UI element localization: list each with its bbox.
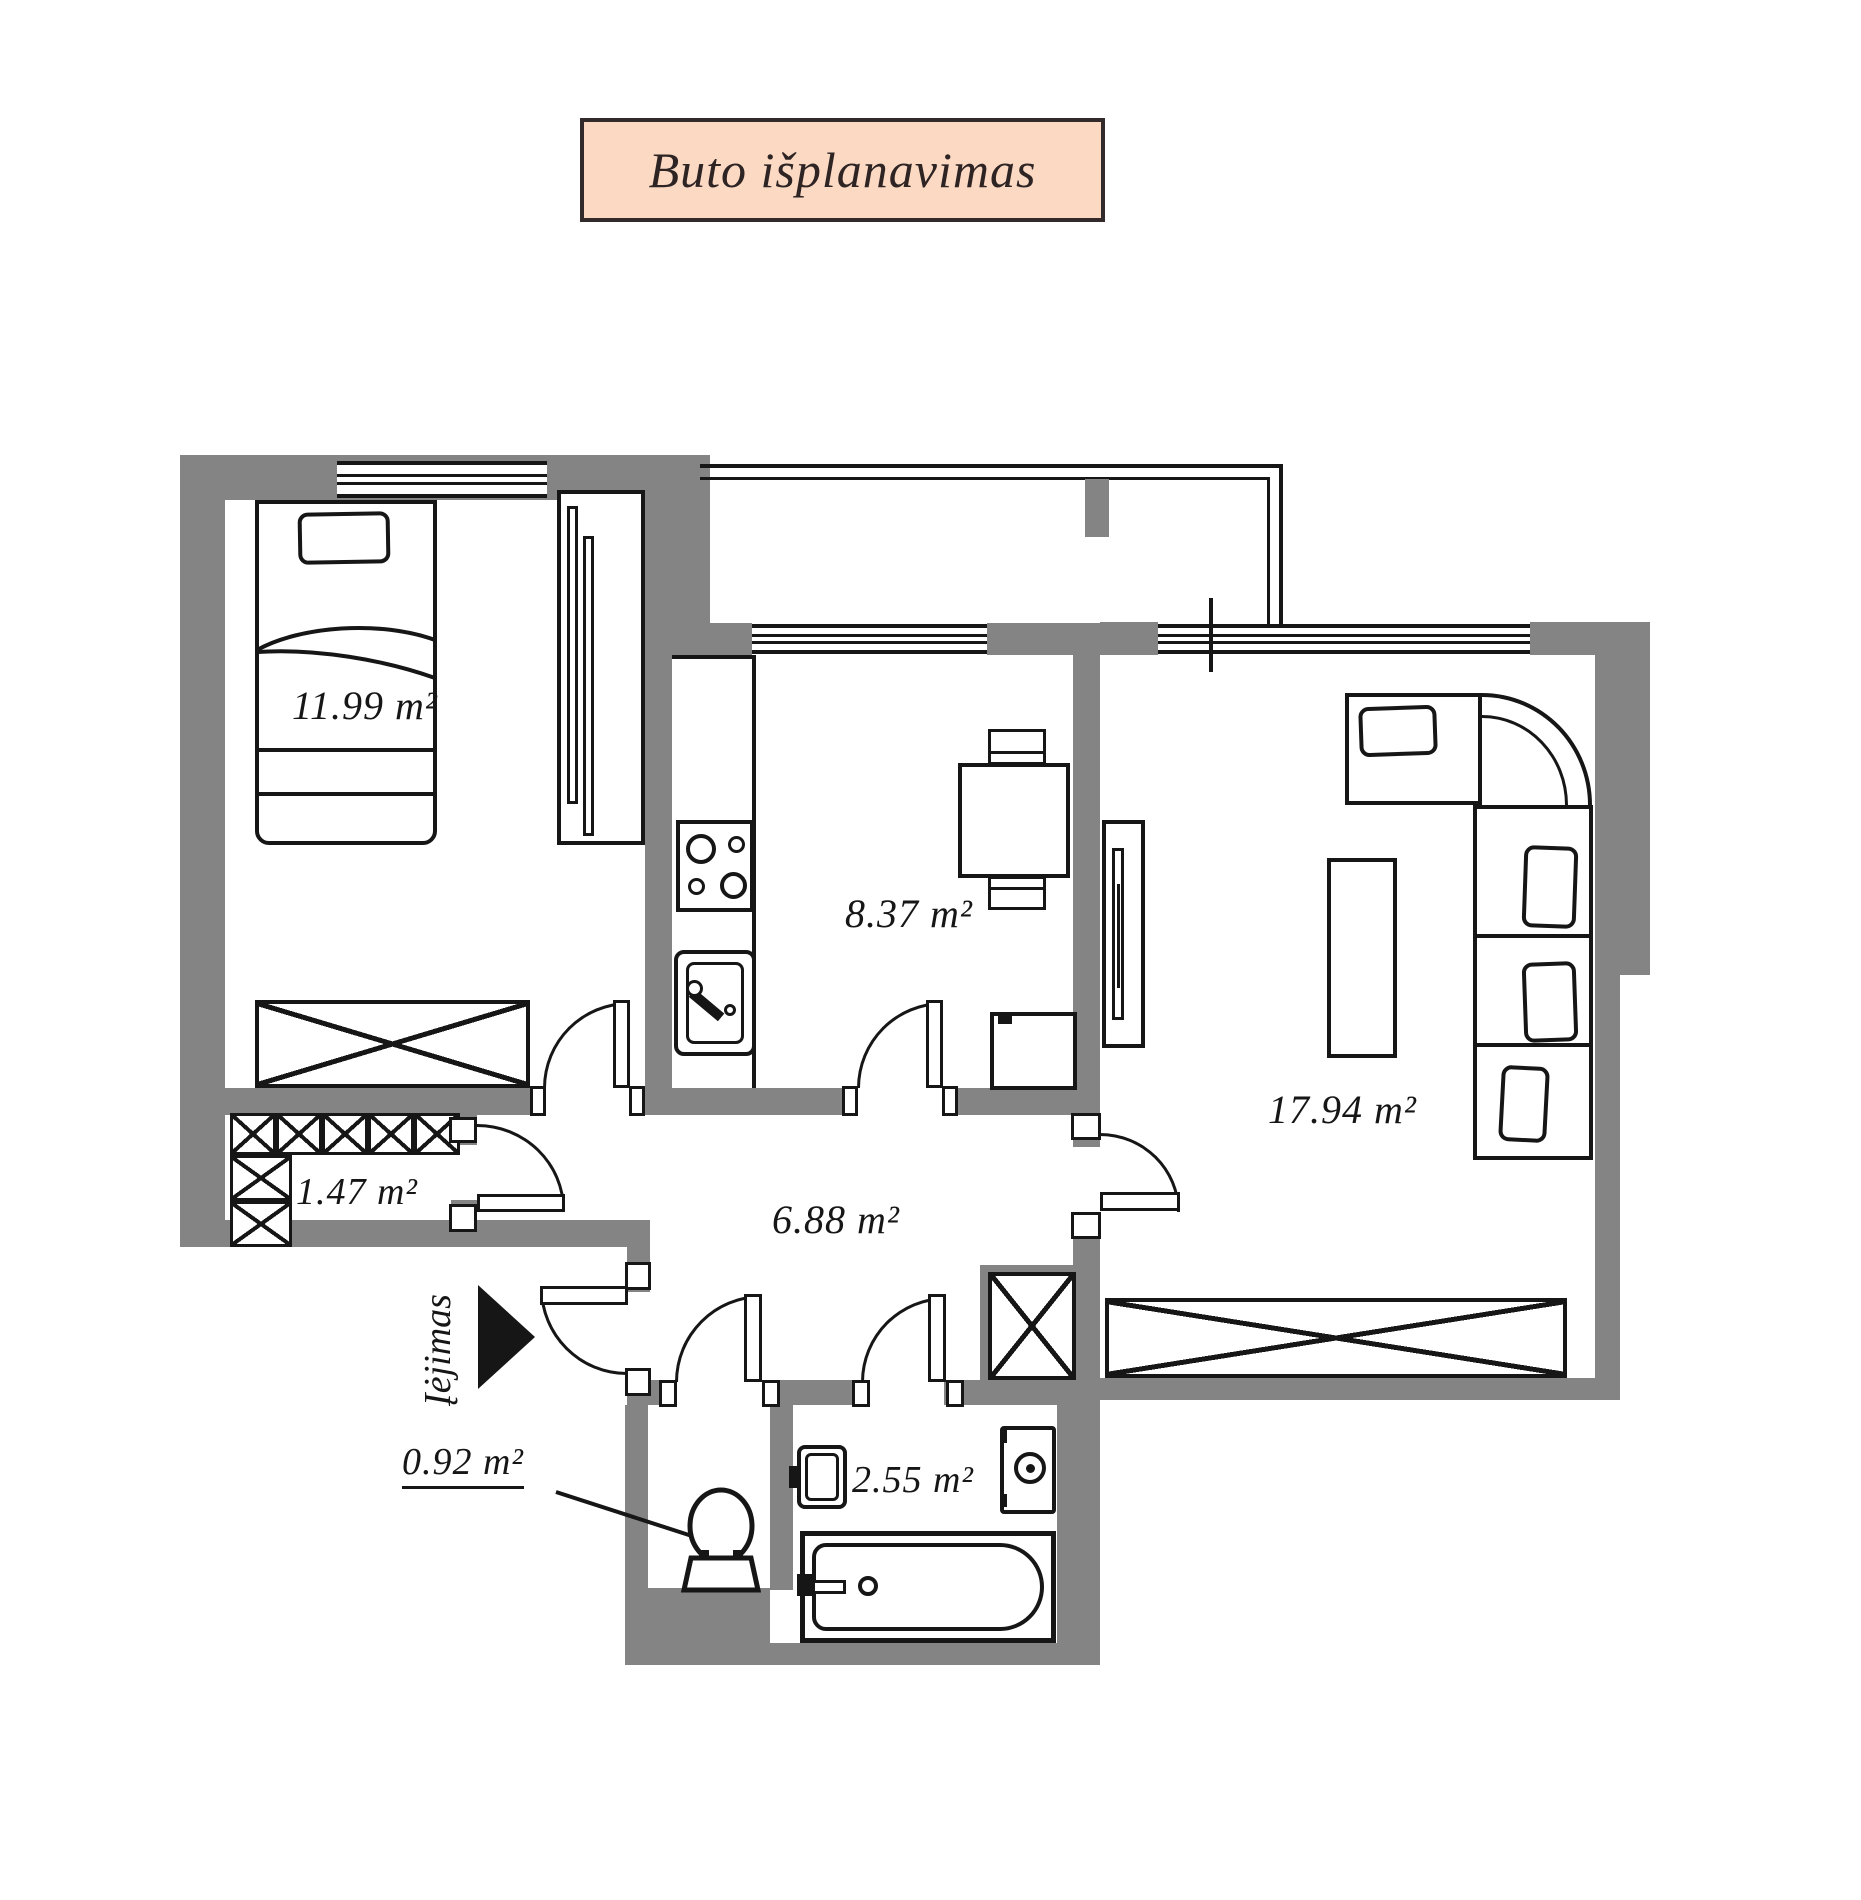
title-box: Buto išplanavimas [580, 118, 1105, 222]
stove-burner [688, 878, 705, 895]
wall [1095, 1378, 1600, 1400]
wall [645, 455, 710, 655]
living-window [1158, 624, 1530, 654]
sofa-pillow [1498, 1065, 1550, 1143]
wall [987, 623, 1100, 655]
tub-faucet [797, 1574, 813, 1596]
closet-shelf-cell [322, 1113, 368, 1155]
kitchen-table [958, 763, 1070, 878]
door-jamb [1071, 1212, 1101, 1239]
wardrobe-door [583, 536, 594, 836]
wardrobe-door [567, 506, 578, 804]
floor-plan: Buto išplanavimas [0, 0, 1861, 1900]
door-jamb [449, 1204, 477, 1232]
bathroom-area-label: 2.55 m² [852, 1458, 974, 1502]
wall [1100, 622, 1158, 655]
door-jamb [946, 1380, 964, 1407]
tv-line [1117, 884, 1120, 988]
closet-shelf-cell [230, 1113, 276, 1155]
chair [988, 876, 1046, 910]
closet-shelf-cell [230, 1201, 292, 1247]
bed-line [257, 792, 435, 796]
basin-tap [789, 1466, 801, 1488]
sofa-pillow [1358, 705, 1438, 758]
bedroom-window [337, 461, 547, 498]
entrance-label: Įėjimas [416, 1265, 460, 1435]
wall [1595, 622, 1650, 975]
tub-drain [858, 1576, 878, 1596]
stove-burner [720, 872, 747, 899]
kitchen-window [752, 624, 987, 654]
window-mullion [1158, 641, 1530, 644]
door-jamb [625, 1368, 651, 1396]
window-mullion [752, 634, 987, 637]
balcony-outline [700, 464, 1283, 468]
stove-burner [686, 834, 716, 864]
door-jamb [449, 1117, 477, 1143]
wall [705, 623, 752, 655]
wall [1057, 1400, 1100, 1665]
bed-line [257, 748, 435, 752]
window-mullion [1158, 634, 1530, 637]
basin-inner [805, 1453, 839, 1501]
bed-pillow [298, 511, 391, 565]
page-title: Buto išplanavimas [649, 141, 1037, 199]
chair-back-line [991, 887, 1043, 890]
bathtub-inner [812, 1543, 1044, 1631]
closet-shelf-cell [230, 1155, 292, 1201]
wall [770, 1405, 793, 1590]
tub-spout [812, 1580, 846, 1594]
stove [676, 820, 754, 912]
bedroom-storage [255, 1000, 530, 1088]
door-jamb [842, 1086, 858, 1116]
living-area-label: 17.94 m² [1268, 1086, 1417, 1133]
wall [942, 1088, 1100, 1115]
sofa-pillow [1522, 845, 1579, 929]
door-jamb [629, 1086, 645, 1116]
vent-shaft [988, 1272, 1076, 1380]
coffee-table [1327, 858, 1397, 1058]
living-wardrobe [1105, 1298, 1567, 1378]
washer-hinge [1000, 1430, 1007, 1443]
door-jamb [625, 1262, 651, 1290]
washer-drum-dot [1026, 1464, 1035, 1473]
bed-blanket-lines [255, 612, 437, 692]
bathroom-door-leaf [928, 1294, 946, 1382]
bedroom-area-label: 11.99 m² [292, 682, 438, 729]
kitchen-area-label: 8.37 m² [845, 890, 973, 937]
window-tick-mark [1209, 598, 1213, 672]
balcony-outline [700, 477, 1270, 480]
sofa-seat-divider [1473, 934, 1593, 938]
closet-shelf-cell [276, 1113, 322, 1155]
closet-area-label: 1.47 m² [296, 1170, 418, 1214]
chair-back-line [991, 751, 1043, 754]
balcony-outline [1279, 464, 1283, 624]
sink-basin [686, 962, 744, 1044]
wall [1595, 975, 1620, 1400]
hallway-area-label: 6.88 m² [772, 1196, 900, 1243]
bedroom-door-leaf [613, 1000, 630, 1088]
closet-shelf-cell [368, 1113, 414, 1155]
living-door-leaf [1100, 1192, 1180, 1211]
wall [180, 1088, 546, 1115]
sofa-pillow [1522, 961, 1579, 1043]
door-jamb [852, 1380, 870, 1407]
wall [180, 455, 225, 1247]
door-jamb [942, 1086, 958, 1116]
wall [629, 1088, 858, 1115]
door-jamb [762, 1380, 780, 1407]
wc-leader-line [552, 1486, 697, 1541]
window-mullion [337, 482, 547, 485]
window-mullion [752, 641, 987, 644]
wall [625, 1643, 1100, 1665]
faucet-knob [686, 980, 703, 997]
closet-door-leaf [477, 1194, 565, 1212]
window-mullion [337, 474, 547, 477]
stove-burner [728, 836, 745, 853]
sink-drain [724, 1004, 736, 1016]
washer-hinge [1000, 1494, 1007, 1507]
entrance-arrow-icon [478, 1285, 535, 1389]
door-jamb [1071, 1113, 1101, 1140]
balcony-wall-stub [1085, 479, 1109, 537]
kitchen-door-leaf [926, 1000, 943, 1088]
wall [1073, 655, 1100, 1115]
entrance-door-leaf [540, 1286, 628, 1305]
balcony-outline [1267, 477, 1270, 624]
door-jamb [659, 1380, 677, 1407]
sofa-seat-divider [1473, 1043, 1593, 1047]
chair [988, 729, 1046, 765]
wc-door-leaf [744, 1294, 762, 1382]
wc-area-label: 0.92 m² [402, 1440, 524, 1489]
fridge-handle [998, 1015, 1012, 1024]
door-jamb [530, 1086, 546, 1116]
